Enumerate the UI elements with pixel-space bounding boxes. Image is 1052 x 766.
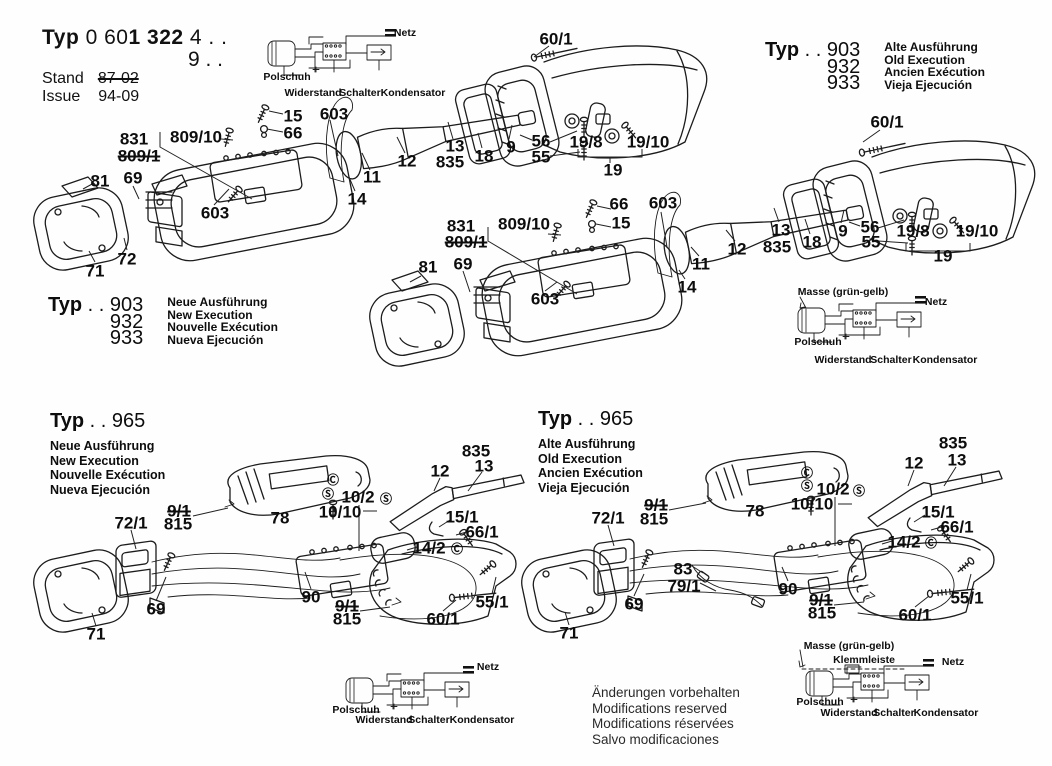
part-label: 11 <box>692 256 710 273</box>
part-label: 15 <box>284 108 303 125</box>
part-label: 13 <box>475 458 494 475</box>
part-label: 9 <box>838 223 847 240</box>
part-label: 15 <box>612 215 631 232</box>
wiring-label: Widerstand <box>355 715 412 726</box>
wiring-label: Schalter <box>339 88 380 99</box>
wiring-label: Netz <box>394 28 416 39</box>
part-label: 835 <box>939 435 967 452</box>
part-label: Ⓒ <box>801 467 813 479</box>
part-label: 69 <box>147 601 166 618</box>
part-label: 12 <box>905 455 924 472</box>
part-label: 55/1 <box>950 590 983 607</box>
part-label: 19/8 <box>896 223 929 240</box>
part-label: 11 <box>363 169 381 186</box>
part-label: 83 <box>674 561 693 578</box>
part-label: 815 <box>164 516 192 533</box>
part-label: 12 <box>398 153 417 170</box>
part-label: 19 <box>934 248 953 265</box>
part-label: 603 <box>649 195 677 212</box>
part-label: 603 <box>531 291 559 308</box>
part-label: 72/1 <box>114 515 147 532</box>
part-label: 14 <box>348 191 367 208</box>
part-label: 69 <box>124 170 143 187</box>
wiring-label: Schalter <box>408 715 449 726</box>
wiring-label: Widerstand <box>814 355 871 366</box>
part-label: 13 <box>948 452 967 469</box>
wiring-label: Netz <box>477 662 499 673</box>
part-label: 69 <box>625 596 644 613</box>
part-label: 90 <box>779 581 798 598</box>
part-label: 12 <box>728 241 747 258</box>
part-label: Ⓢ <box>380 493 392 505</box>
wiring-label: Widerstand <box>820 708 877 719</box>
part-label: 18 <box>475 148 494 165</box>
wiring-label: Polschuh <box>263 72 310 83</box>
part-label: Ⓒ <box>451 543 463 555</box>
part-label: 66 <box>284 125 303 142</box>
part-label: 71 <box>86 263 105 280</box>
wiring-label: Schalter <box>873 708 914 719</box>
part-label: 14/2 <box>412 540 445 557</box>
part-label: 71 <box>560 625 579 642</box>
stand-row: Stand87-02 <box>42 70 227 88</box>
part-label: 78 <box>746 503 765 520</box>
part-label: 809/10 <box>170 129 222 146</box>
wiring-label: Polschuh <box>794 337 841 348</box>
part-label: 55 <box>532 149 551 166</box>
part-label: 72 <box>118 251 137 268</box>
wiring-label: Netz <box>942 657 964 668</box>
part-label: 14 <box>678 279 697 296</box>
part-label: 81 <box>419 259 438 276</box>
part-label: 603 <box>320 106 348 123</box>
modifications-note: Änderungen vorbehalten Modifications res… <box>592 685 740 747</box>
type-number-line2: 9 . . <box>188 50 227 70</box>
title-block: Typ 0 601 322 4 . . 9 . . Stand87-02 Iss… <box>42 26 227 106</box>
wiring-label: Masse (grün-gelb) <box>798 287 888 298</box>
part-label: 78 <box>271 510 290 527</box>
parts-diagram-sheet: { "title": { "typ": "Typ", "num_a": " 0 … <box>0 0 1052 766</box>
part-label: 19/10 <box>956 223 999 240</box>
part-label: 66 <box>610 196 629 213</box>
part-label: 9 <box>506 139 515 156</box>
part-label: 603 <box>201 205 229 222</box>
part-label: 12 <box>431 463 450 480</box>
part-label: 815 <box>640 511 668 528</box>
part-label: 19 <box>604 162 623 179</box>
typ-block-mid-left: Typ . . 903 932 933 Neue Ausführung New … <box>48 296 278 346</box>
part-label: 60/1 <box>426 611 459 628</box>
part-label: 18 <box>803 234 822 251</box>
part-label: 19/10 <box>627 134 670 151</box>
part-label: 809/1 <box>118 148 161 165</box>
part-label: 79/1 <box>667 578 700 595</box>
typ-block-bottom-left: Typ . . 965 Neue Ausführung New Executio… <box>50 412 165 497</box>
part-label: 60/1 <box>898 607 931 624</box>
part-label: 72/1 <box>591 510 624 527</box>
part-label: 10/10 <box>319 504 362 521</box>
part-label: 809/10 <box>498 216 550 233</box>
wiring-label: Schalter <box>870 355 911 366</box>
wiring-label: Kondensator <box>913 355 978 366</box>
typ-block-top-right: Typ . . 903 932 933 Alte Ausführung Old … <box>765 41 985 91</box>
part-label: 835 <box>763 239 791 256</box>
wiring-label: Kondensator <box>450 715 515 726</box>
part-label: Ⓒ <box>925 537 937 549</box>
part-label: 809/1 <box>445 234 488 251</box>
part-label: 13 <box>772 222 791 239</box>
wiring-label: Netz <box>925 297 947 308</box>
part-label: 55 <box>862 234 881 251</box>
part-label: 60/1 <box>539 31 572 48</box>
part-label: 815 <box>808 605 836 622</box>
wiring-label: Polschuh <box>796 697 843 708</box>
wiring-label: Kondensator <box>914 708 979 719</box>
part-label: 831 <box>120 131 148 148</box>
part-label: Ⓢ <box>853 485 865 497</box>
part-label: 60/1 <box>870 114 903 131</box>
part-label: 66/1 <box>940 519 973 536</box>
part-label: 19/8 <box>569 134 602 151</box>
part-label: 14/2 <box>887 534 920 551</box>
part-label: 10/10 <box>791 496 834 513</box>
part-label: 71 <box>87 626 106 643</box>
type-number-line: Typ 0 601 322 4 . . <box>42 26 227 50</box>
part-label: 66/1 <box>465 524 498 541</box>
wiring-label: Kondensator <box>381 88 446 99</box>
part-label: 69 <box>454 256 473 273</box>
part-label: 55/1 <box>475 594 508 611</box>
part-label: 815 <box>333 611 361 628</box>
typ-block-bottom-mid: Typ . . 965 Alte Ausführung Old Executio… <box>538 410 643 495</box>
part-label: Ⓢ <box>322 488 334 500</box>
part-label: Ⓢ <box>801 480 813 492</box>
part-label: Ⓒ <box>327 474 339 486</box>
wiring-label: Masse (grün-gelb) <box>804 641 894 652</box>
issue-row: Issue94-09 <box>42 88 227 106</box>
part-label: 835 <box>436 154 464 171</box>
wiring-label: Widerstand <box>284 88 341 99</box>
wiring-label: Klemmleiste <box>833 655 895 666</box>
part-label: 90 <box>302 589 321 606</box>
part-label: 81 <box>91 173 110 190</box>
